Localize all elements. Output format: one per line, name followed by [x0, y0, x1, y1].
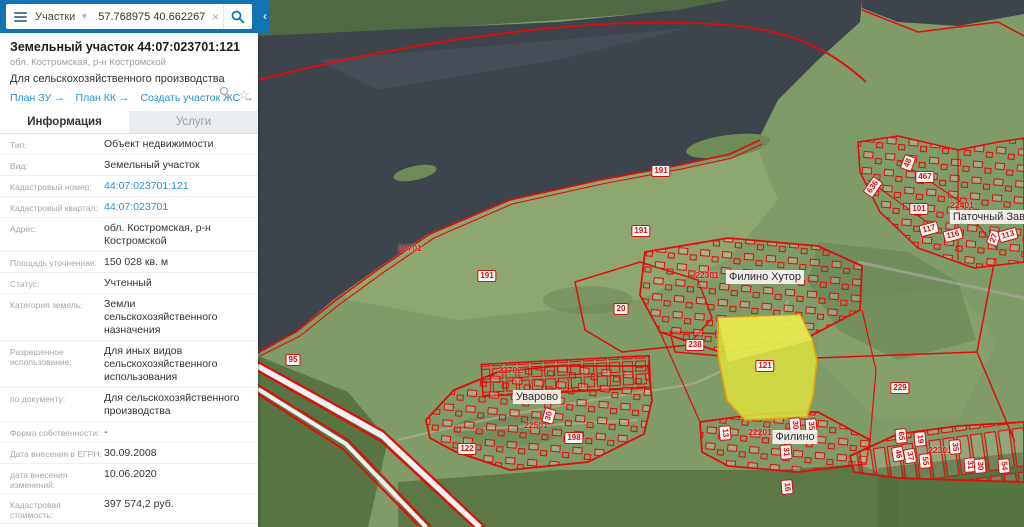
parcel-number: 229 — [890, 382, 909, 394]
parcel-number: 54 — [997, 458, 1010, 474]
info-row: дата внесения изменений:10.06.2020 — [0, 464, 258, 494]
info-row: Кадастровый номер:44:07:023701:121 — [0, 176, 258, 197]
info-row: Тип:Объект недвижимости — [0, 134, 258, 155]
village-label: Филино Хутор — [726, 270, 804, 284]
parcel-number: 13 — [718, 425, 731, 441]
info-row: Дата внесения в ЕГРН:30.09.2008 — [0, 443, 258, 464]
village-label: Паточный Завод — [950, 210, 1024, 224]
parcel-number: 467 — [915, 171, 934, 183]
info-row: Категория земель:Земли сельскохозяйствен… — [0, 294, 258, 341]
info-row: по документу:Для сельскохозяйственного п… — [0, 388, 258, 422]
info-rows: Тип:Объект недвижимости Вид:Земельный уч… — [0, 134, 258, 527]
parcel-number: 30 — [973, 458, 986, 474]
parcel-number: 198 — [564, 432, 583, 444]
info-row: Разрешенное использование:Для иных видов… — [0, 341, 258, 388]
info-row: Кадастровый квартал:44:07:023701 — [0, 197, 258, 218]
info-row: Форма собственности:- — [0, 422, 258, 443]
menu-icon[interactable] — [14, 10, 27, 24]
parcel-number: 101 — [909, 203, 928, 215]
parcel-number: 35 — [948, 439, 961, 455]
plan-kk-link[interactable]: План КК → — [76, 92, 130, 104]
quarter-number: 22301 — [695, 270, 719, 280]
chevron-down-icon[interactable]: ▼ — [80, 12, 88, 21]
search-button[interactable] — [223, 4, 252, 29]
search-icon — [231, 10, 245, 24]
parcel-number: 31 — [779, 444, 792, 460]
search-input[interactable] — [96, 10, 208, 24]
satellite-map[interactable]: Филино Хутор Уварово Филино Паточный Зав… — [258, 0, 1024, 527]
info-panel: Земельный участок 44:07:023701:121 обл. … — [0, 0, 258, 527]
parcel-number: 19 — [913, 431, 926, 447]
parcel-number: 20 — [614, 303, 629, 315]
collapse-panel-button[interactable]: ‹ — [263, 8, 267, 24]
search-box: Участки ▼ × — [6, 4, 252, 29]
page-title: Земельный участок 44:07:023701:121 — [10, 40, 248, 54]
village-label: Филино — [772, 430, 817, 444]
parcel-number: 65 — [894, 428, 907, 444]
parcel-number: 55 — [918, 453, 931, 469]
search-category-select[interactable]: Участки — [35, 11, 75, 23]
parcel-number: 37 — [903, 448, 917, 465]
object-description: Для сельскохозяйственного производства — [10, 73, 248, 85]
quarter-number: 23702 — [498, 365, 522, 375]
parcel-number: 191 — [631, 225, 650, 237]
parcel-number: 238 — [685, 339, 704, 351]
selected-parcel-label: 121 — [755, 360, 774, 372]
parcel-number: 16 — [780, 479, 793, 495]
zoom-to-object-icon[interactable] — [219, 86, 232, 104]
info-row: Адрес:обл. Костромская, р-н Костромской — [0, 218, 258, 252]
plan-zu-link[interactable]: План ЗУ → — [10, 92, 65, 104]
object-address-subtitle: обл. Костромская, р-н Костромской — [10, 57, 248, 68]
search-toolbar: Участки ▼ × ‹ — [0, 0, 270, 33]
info-row: Площадь уточненная:150 028 кв. м — [0, 252, 258, 273]
quarter-number: 22401 — [950, 200, 974, 210]
cadastral-number-link[interactable]: 44:07:023701:121 — [104, 180, 248, 193]
quarter-number: 22201 — [748, 427, 772, 437]
info-row: Кадастровая стоимость:397 574,2 руб. — [0, 494, 258, 524]
parcel-number: 122 — [457, 443, 476, 455]
clear-search-icon[interactable]: × — [212, 10, 219, 24]
cadastral-quarter-link[interactable]: 44:07:023701 — [104, 201, 248, 214]
favorite-star-icon[interactable]: ☆ — [238, 87, 250, 103]
panel-tabs: Информация Услуги — [0, 111, 258, 134]
parcel-number: 95 — [286, 354, 301, 366]
tab-services[interactable]: Услуги — [129, 111, 258, 133]
info-row: Вид:Земельный участок — [0, 155, 258, 176]
village-label: Уварово — [513, 390, 561, 404]
parcel-number: 191 — [651, 165, 670, 177]
info-row: Статус:Учтенный — [0, 273, 258, 294]
tab-information[interactable]: Информация — [0, 111, 129, 133]
quarter-number: 23701 — [398, 243, 422, 253]
parcel-number: 191 — [477, 270, 496, 282]
